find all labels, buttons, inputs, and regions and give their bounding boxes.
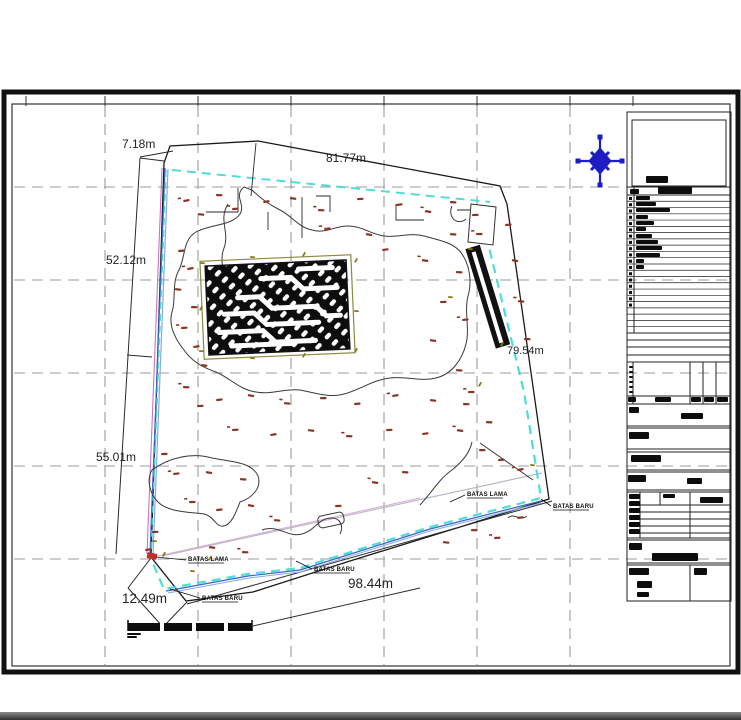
- dim-12-49: 12.49m: [122, 591, 167, 606]
- compass-icon: [576, 135, 624, 187]
- dim-98-44: 98.44m: [348, 576, 393, 591]
- drawing-sheet: 7.18m 81.77m 52.12m 55.01m 12.49m 98.44m…: [0, 0, 741, 720]
- building-hatched: [200, 255, 355, 359]
- scale-bar: [128, 620, 252, 631]
- dim-52-12: 52.12m: [106, 253, 146, 267]
- dim-7-18: 7.18m: [122, 137, 155, 151]
- dim-55-01: 55.01m: [96, 450, 136, 464]
- label-batas-baru-2: BATAS BARU: [314, 567, 355, 573]
- label-batas-lama-1: BATAS LAMA: [467, 492, 508, 498]
- dim-81-77: 81.77m: [326, 151, 366, 165]
- label-batas-lama-2: BATAS LAMA: [188, 557, 229, 563]
- dim-79-54: 79.54m: [507, 345, 544, 357]
- site-plan-canvas: 7.18m 81.77m 52.12m 55.01m 12.49m 98.44m…: [0, 0, 741, 720]
- bottom-edge-bar: [0, 712, 741, 720]
- label-batas-baru-1: BATAS BARU: [553, 504, 594, 510]
- building-strip: [465, 204, 510, 349]
- title-block: [627, 112, 731, 601]
- label-batas-baru-3: BATAS BARU: [202, 596, 243, 602]
